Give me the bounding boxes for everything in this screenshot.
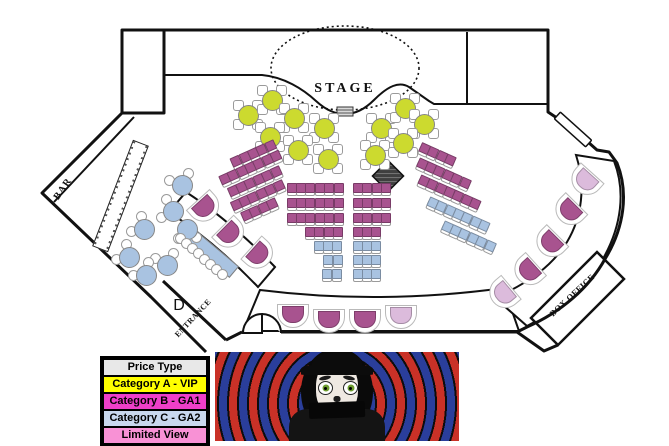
legend-row-3: Limited View: [102, 426, 208, 445]
seat-ga1[interactable]: [381, 198, 391, 208]
seat-ga1[interactable]: [381, 183, 391, 193]
seat-ga1[interactable]: [305, 198, 315, 208]
label-door-d: D: [173, 297, 185, 315]
performer-hair: [312, 353, 362, 375]
seat-ga1[interactable]: [334, 198, 344, 208]
promo-image: [215, 352, 459, 441]
seat-ga1[interactable]: [324, 213, 334, 223]
seat-ga1[interactable]: [362, 183, 372, 193]
seat-ga1[interactable]: [371, 227, 381, 237]
table-top-ga2: [119, 247, 140, 268]
legend-row-0: Category A - VIP: [102, 375, 208, 394]
seat-ga1[interactable]: [324, 183, 334, 193]
table-top-vip: [284, 108, 305, 129]
seat-ga2[interactable]: [371, 255, 381, 265]
legend-row-1: Category B - GA1: [102, 392, 208, 411]
side-door-icon: [554, 112, 591, 147]
seat-ga1[interactable]: [381, 213, 391, 223]
seat-ga1[interactable]: [333, 227, 343, 237]
table-top-ga2: [163, 201, 184, 222]
label-stage: STAGE: [314, 81, 375, 97]
legend-row-2: Category C - GA2: [102, 409, 208, 428]
seat-ga2[interactable]: [333, 255, 343, 265]
price-legend: Price Type Category A - VIPCategory B - …: [100, 356, 210, 446]
left-eye-icon: [318, 381, 333, 395]
seat-ga1[interactable]: [334, 183, 344, 193]
tape-over-mouth-icon: [309, 401, 366, 419]
seat-ga1[interactable]: [362, 213, 372, 223]
table-top-ga2: [134, 219, 155, 240]
table-top-ga2: [136, 265, 157, 286]
seat-ga1[interactable]: [314, 227, 324, 237]
table-top-vip: [288, 140, 309, 161]
seat-ga2[interactable]: [323, 255, 333, 265]
seat-ga2[interactable]: [322, 269, 332, 279]
table-top-vip: [318, 149, 339, 170]
table-top-vip: [393, 133, 414, 154]
right-eye-icon: [343, 381, 358, 395]
seating-map-canvas: STAGEBARENTRANCEBOX OFFICED Price Type C…: [0, 0, 669, 446]
chair-icon: [217, 269, 228, 280]
table-top-ga2: [157, 255, 178, 276]
seat-ga1[interactable]: [324, 198, 334, 208]
table-top-ga2: [172, 175, 193, 196]
table-top-vip: [314, 118, 335, 139]
left-iris: [322, 385, 329, 392]
seat-ga1[interactable]: [362, 198, 372, 208]
seat-ga1[interactable]: [305, 213, 315, 223]
right-iris: [347, 385, 354, 392]
stage-step-icon: [337, 107, 353, 116]
seat-ga2[interactable]: [371, 269, 381, 279]
seat-ga2[interactable]: [332, 269, 342, 279]
seat-ga1[interactable]: [334, 213, 344, 223]
seat-ga1[interactable]: [305, 183, 315, 193]
seat-ga2[interactable]: [371, 241, 381, 251]
table-top-vip: [365, 145, 386, 166]
seat-ga2[interactable]: [332, 241, 342, 251]
